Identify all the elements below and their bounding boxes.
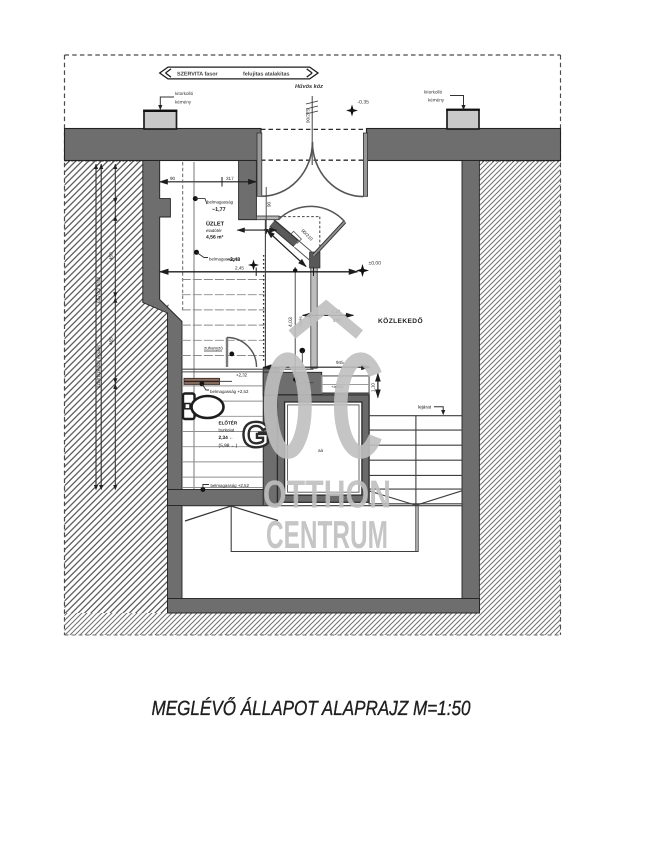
svg-text:450: 450 <box>109 252 114 260</box>
svg-text:+2,32: +2,32 <box>236 373 248 378</box>
svg-text:SZERVITA fasor: SZERVITA fasor <box>177 71 219 77</box>
svg-text:eladótér: eladótér <box>206 228 222 233</box>
svg-text:~1,77: ~1,77 <box>212 207 226 213</box>
svg-text:4,03: 4,03 <box>288 317 294 327</box>
svg-text:kémény: kémény <box>175 100 192 105</box>
svg-text:(5,98 ←): (5,98 ←) <box>219 443 238 449</box>
svg-text:belmagasság: belmagasság <box>207 200 234 205</box>
svg-text:465: 465 <box>109 337 114 345</box>
svg-text:90/275: 90/275 <box>306 109 311 123</box>
svg-text:belmagasság +2,52: belmagasság +2,52 <box>211 483 250 488</box>
svg-text:±0,00: ±0,00 <box>369 261 382 267</box>
svg-text:KÖZLEKEDŐ: KÖZLEKEDŐ <box>378 317 423 325</box>
svg-text:OTTHON: OTTHON <box>263 474 391 517</box>
svg-text:MEGLÉVŐ ÁLLAPOT ALAPRAJZ M=1:5: MEGLÉVŐ ÁLLAPOT ALAPRAJZ M=1:50 <box>152 697 471 720</box>
svg-text:-0,35: -0,35 <box>358 100 370 106</box>
svg-text:ELŐTÉR: ELŐTÉR <box>219 420 238 426</box>
svg-text:90: 90 <box>170 176 176 181</box>
svg-text:317: 317 <box>226 176 234 181</box>
svg-text:belmagasság +2,52: belmagasság +2,52 <box>210 389 249 394</box>
svg-text:1,10: 1,10 <box>371 383 376 392</box>
svg-text:Hűvös köz: Hűvös köz <box>295 83 323 90</box>
svg-text:lejárat: lejárat <box>418 405 432 411</box>
svg-text:kémény: kémény <box>428 98 445 103</box>
svg-text:945: 945 <box>336 360 344 365</box>
svg-text:zuhanyzó: zuhanyzó <box>204 346 223 351</box>
svg-text:felujitas atalakitas: felujitas atalakitas <box>243 71 289 77</box>
svg-text:ÜZLET: ÜZLET <box>206 221 225 228</box>
svg-text:4,56 m²: 4,56 m² <box>206 235 224 241</box>
svg-text:aá: aá <box>318 448 324 453</box>
svg-text:kitorkolló: kitorkolló <box>424 90 443 95</box>
svg-text:90: 90 <box>267 201 272 207</box>
svg-text:2,34 ←: 2,34 ← <box>219 435 234 441</box>
svg-text:burkolat: burkolat <box>219 428 235 433</box>
svg-text:2,45: 2,45 <box>235 265 244 270</box>
svg-text:szomszédos épület: szomszédos épület <box>96 345 102 388</box>
svg-text:6570/2 hrsz: 6570/2 hrsz <box>96 276 102 303</box>
svg-text:kitorkolló: kitorkolló <box>175 91 194 96</box>
svg-text:CENTRUM: CENTRUM <box>266 514 388 557</box>
svg-text:~2,48: ~2,48 <box>227 257 240 263</box>
